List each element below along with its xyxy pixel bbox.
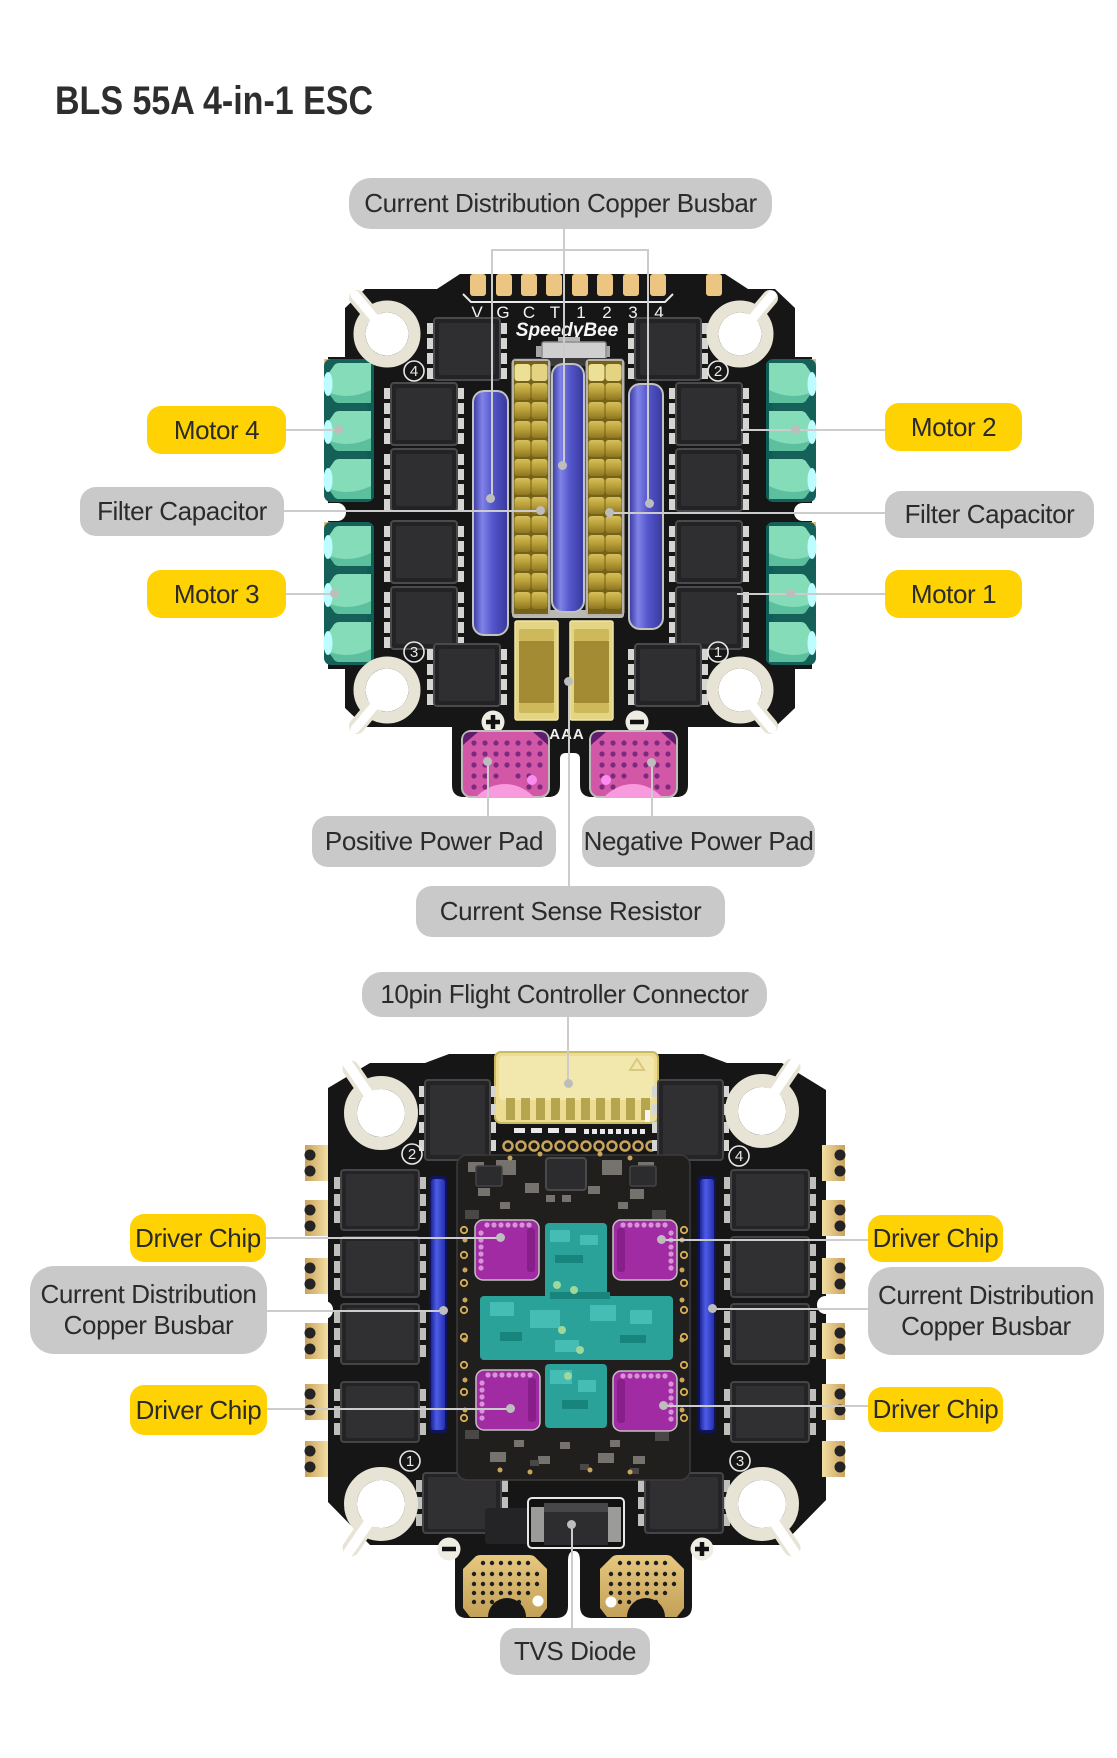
svg-text:AAA: AAA (549, 726, 585, 743)
svg-text:3: 3 (410, 644, 418, 661)
svg-text:4: 4 (735, 1148, 743, 1165)
svg-text:3: 3 (736, 1453, 744, 1470)
svg-text:1: 1 (406, 1453, 414, 1470)
svg-text:4: 4 (410, 363, 418, 380)
svg-text:2: 2 (714, 363, 722, 380)
svg-text:2: 2 (408, 1146, 416, 1163)
svg-text:1: 1 (714, 644, 722, 661)
